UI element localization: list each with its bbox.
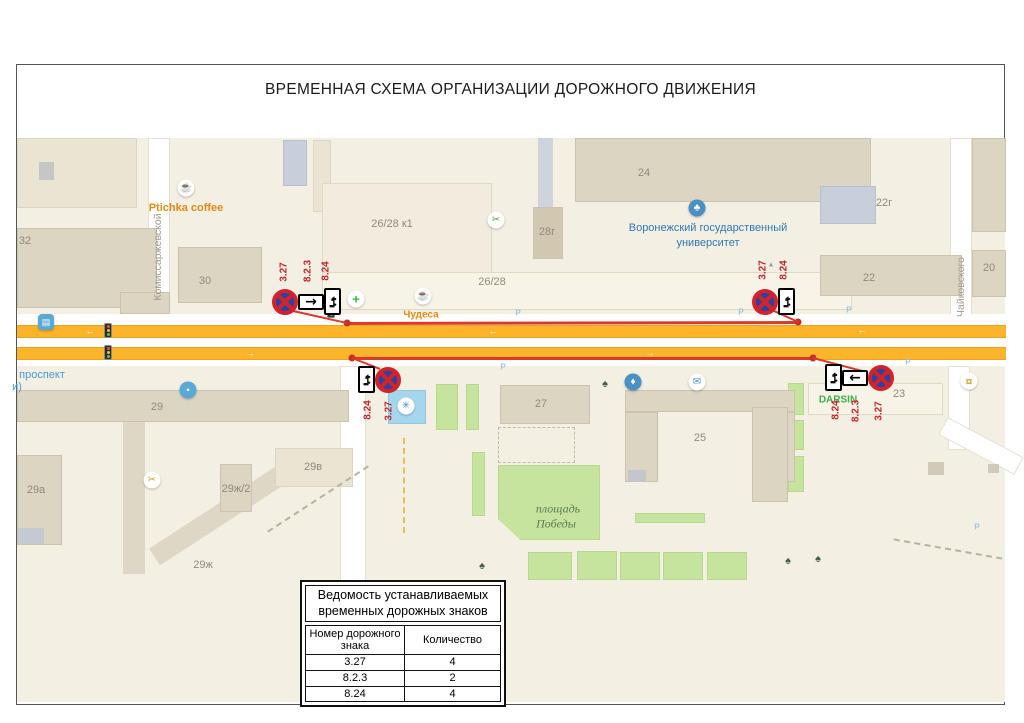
shop-icon: ¤: [961, 373, 978, 390]
building-number: 29ж/2: [222, 483, 251, 495]
building-number: 25: [694, 432, 706, 444]
table-cell-sign-number: 3.27: [306, 655, 405, 671]
mail-icon: ✉: [689, 374, 706, 391]
sign-number-label: 3.27: [758, 260, 769, 279]
building-number: 30: [199, 275, 211, 287]
parking-marker: P: [974, 523, 979, 532]
monument-icon: ▴: [769, 260, 773, 269]
table-cell-sign-number: 8.24: [306, 687, 405, 703]
sign-8.24-tow-truck-plate-icon: [324, 288, 341, 315]
tree-icon: ♠: [476, 560, 488, 572]
university-icon: ♣: [689, 200, 706, 217]
road-direction-arrow: ←: [86, 326, 95, 336]
street-label-komissarzhevskoy: Комиссаржевской: [152, 213, 164, 300]
building-number: 27: [535, 398, 547, 410]
pharmacy-icon: +: [348, 291, 365, 308]
building-number: 22г: [876, 197, 892, 209]
street-label-prospekt: проспект: [19, 369, 65, 381]
sign-8.2.3-arrow-plate-icon: ←: [842, 370, 868, 386]
pin-icon: ●: [180, 382, 197, 399]
coffee-icon: ☕: [178, 180, 195, 197]
legend-table: Ведомость устанавливаемых временных доро…: [300, 580, 506, 707]
no-stopping-zone-line: [352, 357, 813, 360]
sign-number-label: 8.24: [321, 261, 332, 280]
sign-number-label: 8.24: [363, 400, 374, 419]
scissors-icon: ✂: [488, 212, 505, 229]
parking-marker: P: [846, 306, 851, 315]
parking-marker: P: [500, 363, 505, 372]
water-icon: ♦: [625, 374, 642, 391]
table-cell-quantity: 4: [405, 687, 501, 703]
poi-label-university-1: Воронежский государственный: [629, 222, 788, 234]
tree-icon: ♠: [599, 378, 611, 390]
tree-icon: ♠: [782, 555, 794, 567]
road-direction-arrow: →: [246, 348, 255, 358]
parking-marker: P: [905, 358, 910, 367]
building-number: 29а: [27, 484, 45, 496]
building-number: 23: [893, 388, 905, 400]
building-number: 20: [983, 262, 995, 274]
sign-8.2.3-arrow-plate-icon: →: [298, 294, 324, 310]
road-direction-arrow: ←: [489, 326, 498, 336]
table-cell-sign-number: 8.2.3: [306, 671, 405, 687]
street-label-prospekt-2: и): [12, 381, 22, 393]
building-number: 29: [151, 401, 163, 413]
sign-group: [752, 288, 795, 315]
building-number: 26/28: [478, 276, 506, 288]
legend-title: Ведомость устанавливаемых временных доро…: [305, 585, 501, 622]
poi-label-chudesa: Чудеса: [403, 310, 438, 321]
bus-stop-icon: ▤: [38, 314, 54, 330]
park-label-2: Победы: [536, 517, 576, 532]
building-number: 26/28 к1: [371, 218, 413, 230]
poi-label-university-2: университет: [676, 237, 739, 249]
sign-3.27-no-stopping-icon: [272, 289, 298, 315]
sign-8.24-tow-truck-plate-icon: [358, 366, 375, 393]
building-number: 24: [638, 167, 650, 179]
beauty-icon: ✂: [144, 472, 161, 489]
building-number: 28г: [539, 226, 555, 238]
sign-number-label: 8.2.3: [303, 260, 314, 282]
building-number: 32: [19, 235, 31, 247]
building-number: 22: [863, 272, 875, 284]
fountain-icon: ✳: [398, 398, 415, 415]
sign-8.24-tow-truck-plate-icon: [778, 288, 795, 315]
coffee-icon: ☕: [415, 288, 432, 305]
sign-3.27-no-stopping-icon: [868, 365, 894, 391]
poi-label-ptichka-coffee: Ptichka coffee: [149, 202, 224, 214]
sign-group: [358, 366, 401, 393]
parking-marker: P: [515, 309, 520, 318]
scheme-sheet: ВРЕМЕННАЯ СХЕМА ОРГАНИЗАЦИИ ДОРОЖНОГО ДВ…: [0, 0, 1024, 723]
sign-3.27-no-stopping-icon: [752, 289, 778, 315]
parking-marker: P: [738, 308, 743, 317]
no-stopping-zone-line: [347, 321, 798, 325]
table-cell-quantity: 2: [405, 671, 501, 687]
tree-icon: ♠: [812, 553, 824, 565]
road-direction-arrow: ←: [858, 325, 867, 335]
building-number: 29в: [304, 461, 322, 473]
sign-number-label: 8.24: [779, 260, 790, 279]
sign-8.24-tow-truck-plate-icon: [825, 364, 842, 391]
sign-3.27-no-stopping-icon: [375, 367, 401, 393]
sign-group: ←: [825, 364, 894, 391]
street-label-chaykovskogo: Чайковского: [955, 257, 967, 317]
building-number: 29ж: [193, 559, 213, 571]
sign-number-label: 8.2.3: [851, 400, 862, 422]
annotation-overlay: →3.278.2.38.243.278.248.243.27←8.248.2.3…: [0, 0, 1024, 723]
sign-number-label: 8.24: [831, 400, 842, 419]
table-header-quantity: Количество: [405, 626, 501, 655]
sign-number-label: 3.27: [279, 262, 290, 281]
sign-number-label: 3.27: [874, 401, 885, 420]
sign-number-label: 3.27: [384, 401, 395, 420]
table-cell-quantity: 4: [405, 655, 501, 671]
park-label-1: площадь: [536, 502, 580, 517]
table-header-sign-number: Номер дорожного знака: [306, 626, 405, 655]
sign-group: →: [272, 288, 341, 315]
